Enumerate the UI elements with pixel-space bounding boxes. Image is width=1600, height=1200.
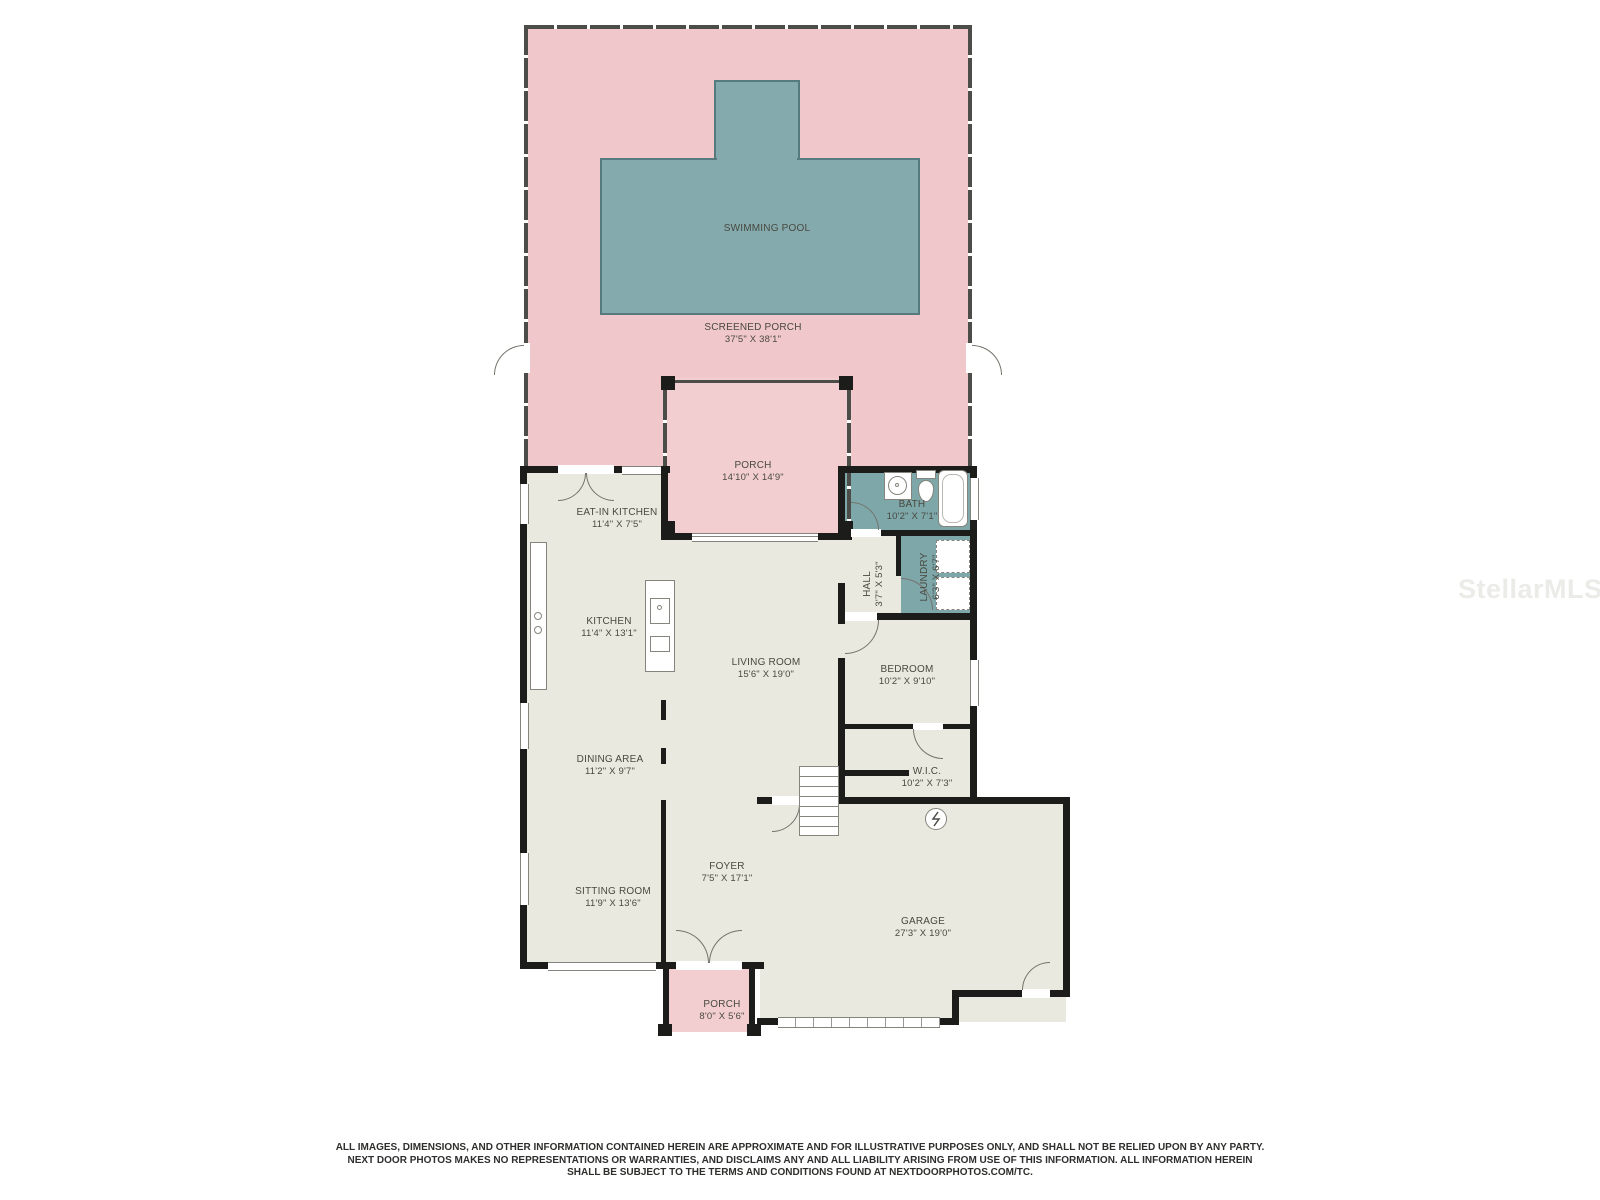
room-name: BATH xyxy=(887,499,938,511)
room-label-porch-lower: PORCH 8'0" X 5'6" xyxy=(699,999,744,1023)
stairs xyxy=(799,766,839,836)
electrical-panel-icon xyxy=(925,808,947,830)
wall xyxy=(952,990,1070,997)
room-label-garage: GARAGE 27'3" X 19'0" xyxy=(895,916,951,940)
post xyxy=(747,1024,761,1036)
room-name: SCREENED PORCH xyxy=(704,322,801,334)
room-label-hall: HALL 3'7" X 5'3" xyxy=(862,561,886,606)
window xyxy=(970,478,979,520)
room-dims: 6'3" X 6'7" xyxy=(931,552,943,601)
room-label-foyer: FOYER 7'5" X 17'1" xyxy=(702,861,753,885)
floor-plan: SWIMMING POOL SCREENED PORCH 37'5" X 38'… xyxy=(0,0,1600,1200)
disclaimer-line: SHALL BE SUBJECT TO THE TERMS AND CONDIT… xyxy=(180,1167,1420,1180)
room-name: PORCH xyxy=(699,999,744,1011)
wall xyxy=(838,727,845,800)
room-name: FOYER xyxy=(702,861,753,873)
room-dims: 3'7" X 5'3" xyxy=(874,561,886,606)
post xyxy=(839,376,853,390)
swimming-pool xyxy=(717,156,797,164)
room-name: GARAGE xyxy=(895,916,951,928)
stove-burner-icon xyxy=(534,626,542,634)
room-name: SWIMMING POOL xyxy=(724,223,811,235)
screen-wall xyxy=(524,25,528,343)
bathtub-icon xyxy=(942,474,964,523)
room-dims: 11'2" X 9'7" xyxy=(577,766,644,778)
room-dims: 37'5" X 38'1" xyxy=(704,334,801,346)
room-label-screened-porch: SCREENED PORCH 37'5" X 38'1" xyxy=(704,322,801,346)
wall xyxy=(749,969,755,1032)
room-dims: 11'4" X 7'5" xyxy=(577,519,658,531)
window xyxy=(548,962,656,971)
room-name: SITTING ROOM xyxy=(575,886,651,898)
room-label-swimming-pool: SWIMMING POOL xyxy=(724,223,811,235)
garage-door xyxy=(778,1017,940,1028)
wall xyxy=(661,466,668,540)
wall xyxy=(661,748,666,764)
swimming-pool xyxy=(600,158,920,315)
disclaimer-line: ALL IMAGES, DIMENSIONS, AND OTHER INFORM… xyxy=(180,1142,1420,1155)
kitchen-island xyxy=(645,580,675,672)
room-dims: 7'5" X 17'1" xyxy=(702,873,753,885)
room-name: PORCH xyxy=(722,460,784,472)
wall xyxy=(661,800,666,969)
room-dims: 10'2" X 9'10" xyxy=(879,676,935,688)
room-label-porch-upper: PORCH 14'10" X 14'9" xyxy=(722,460,784,484)
door-swing-arc xyxy=(494,345,524,375)
wall xyxy=(661,700,666,720)
wall xyxy=(838,466,845,540)
room-name: W.I.C. xyxy=(902,766,953,778)
window xyxy=(520,853,529,905)
room-name: LIVING ROOM xyxy=(732,657,801,669)
screen-wall xyxy=(524,25,972,29)
lightning-icon xyxy=(926,809,946,829)
room-name: LAUNDRY xyxy=(919,552,931,601)
window xyxy=(520,703,529,749)
room-dims: 11'4" X 13'1" xyxy=(581,628,637,640)
wall xyxy=(843,770,909,776)
room-name: DINING AREA xyxy=(577,754,644,766)
drain-icon xyxy=(895,483,899,487)
room-dims: 8'0" X 5'6" xyxy=(699,1011,744,1023)
wall xyxy=(1063,797,1070,997)
screen-wall xyxy=(968,25,972,343)
room-label-bath: BATH 10'2" X 7'1" xyxy=(887,499,938,523)
room-label-laundry: LAUNDRY 6'3" X 6'7" xyxy=(919,552,943,601)
room-label-sitting-room: SITTING ROOM 11'9" X 13'6" xyxy=(575,886,651,910)
window xyxy=(622,466,662,475)
room-label-wic: W.I.C. 10'2" X 7'3" xyxy=(902,766,953,790)
room-label-kitchen: KITCHEN 11'4" X 13'1" xyxy=(581,616,637,640)
wall xyxy=(843,724,974,729)
room-label-bedroom: BEDROOM 10'2" X 9'10" xyxy=(879,664,935,688)
room-dims: 11'9" X 13'6" xyxy=(575,898,651,910)
room-name: KITCHEN xyxy=(581,616,637,628)
wall xyxy=(663,969,669,1032)
room-name: BEDROOM xyxy=(879,664,935,676)
screen-wall xyxy=(524,373,528,470)
stove-burner-icon xyxy=(534,612,542,620)
door-opening xyxy=(1022,989,1050,998)
porch-area xyxy=(665,378,852,540)
sink-icon xyxy=(650,598,670,624)
room-label-dining-area: DINING AREA 11'2" X 9'7" xyxy=(577,754,644,778)
door-swing-arc xyxy=(972,345,1002,375)
wall xyxy=(838,658,845,727)
room-label-living-room: LIVING ROOM 15'6" X 19'0" xyxy=(732,657,801,681)
stellar-mls-watermark: StellarMLS xyxy=(1458,574,1600,605)
room-dims: 10'2" X 7'1" xyxy=(887,511,938,523)
screen-wall xyxy=(968,373,972,470)
room-dims: 14'10" X 14'9" xyxy=(722,472,784,484)
faucet-icon xyxy=(657,605,662,610)
porch-beam xyxy=(675,380,839,383)
disclaimer-line: NEXT DOOR PHOTOS MAKES NO REPRESENTATION… xyxy=(180,1155,1420,1168)
wall xyxy=(896,536,901,576)
room-dims: 10'2" X 7'3" xyxy=(902,778,953,790)
sliding-door xyxy=(692,533,818,542)
window xyxy=(520,484,529,524)
post xyxy=(661,376,675,390)
room-dims: 27'3" X 19'0" xyxy=(895,928,951,940)
room-dims: 15'6" X 19'0" xyxy=(732,669,801,681)
cooktop-icon xyxy=(650,636,670,652)
disclaimer-text: ALL IMAGES, DIMENSIONS, AND OTHER INFORM… xyxy=(180,1142,1420,1180)
room-label-eat-in-kitchen: EAT-IN KITCHEN 11'4" X 7'5" xyxy=(577,507,658,531)
door-opening xyxy=(851,529,881,537)
toilet-tank-icon xyxy=(916,470,936,479)
swimming-pool xyxy=(714,80,800,162)
post xyxy=(658,1024,672,1036)
room-name: HALL xyxy=(862,561,874,606)
window xyxy=(970,660,979,706)
room-name: EAT-IN KITCHEN xyxy=(577,507,658,519)
